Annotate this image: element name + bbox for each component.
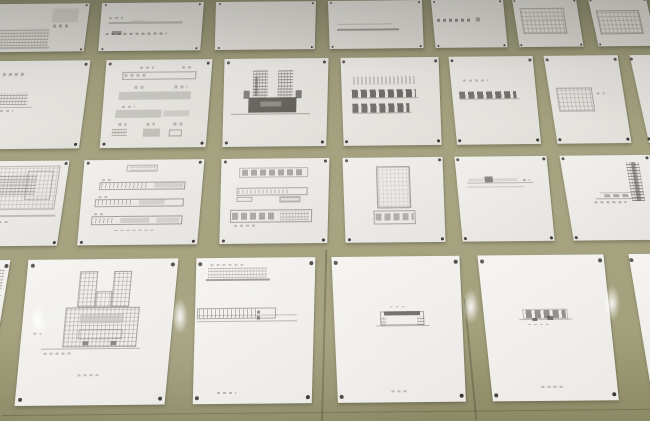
- drawing-mark-grid: [595, 10, 644, 34]
- sheet-pin: [310, 46, 312, 48]
- drawing-mark-rect-d: [112, 31, 123, 35]
- sheet-pin: [437, 45, 439, 47]
- sheet-pin: [195, 396, 199, 400]
- drawing-mark-rect-f: [138, 200, 165, 205]
- drawing-mark-dots: [182, 66, 193, 68]
- drawing-mark-hline: [375, 325, 429, 327]
- drawing-sheet: [98, 2, 204, 51]
- drawing-mark-dots: [0, 110, 13, 112]
- drawing-mark-dots: [43, 353, 70, 355]
- drawing-mark-hatch: [208, 268, 268, 279]
- sheet-pin: [217, 47, 219, 49]
- drawing-sheet: [331, 256, 465, 403]
- sheet-pin: [332, 46, 334, 48]
- sheet-pin: [309, 261, 313, 265]
- sheet-pin: [627, 138, 630, 141]
- panel-seam: [321, 250, 327, 421]
- sheet-pin: [520, 44, 522, 46]
- drawing-mark-hline: [0, 295, 2, 297]
- drawing-mark-dots: [98, 196, 110, 198]
- drawing-mark-dots: [140, 67, 154, 69]
- drawing-mark-rect-f: [120, 217, 149, 223]
- drawing-mark-grid: [62, 307, 139, 347]
- drawing-mark-comb: [97, 200, 133, 205]
- drawing-mark-hline: [0, 107, 33, 109]
- drawing-mark-rect-d: [110, 341, 116, 345]
- sheet-pin: [321, 141, 324, 144]
- sheet-pin: [104, 4, 106, 6]
- drawing-mark-dots: [437, 19, 470, 22]
- sheet-pin: [437, 140, 440, 143]
- sheet-pin: [224, 142, 227, 145]
- sheet-pin: [612, 392, 616, 396]
- drawing-mark-hatch: [380, 316, 387, 325]
- sheet-pin: [311, 2, 313, 4]
- sheet-pin: [170, 262, 174, 266]
- sheet-pin: [542, 158, 545, 161]
- drawing-mark-hline: [197, 320, 297, 322]
- drawing-mark-dots: [134, 86, 147, 88]
- drawing-mark-dots: [109, 17, 123, 19]
- drawing-mark-rect-o: [237, 197, 253, 202]
- sheet-pin: [580, 44, 582, 46]
- sheet-pin: [334, 261, 338, 265]
- drawing-mark-mods: [232, 212, 278, 220]
- sheet-pin: [64, 162, 67, 165]
- sheet-pin: [419, 45, 421, 47]
- light-reflection: [604, 285, 620, 321]
- sheet-pin: [31, 264, 35, 268]
- sheet-pin: [433, 1, 435, 3]
- sheet-pin: [500, 0, 502, 2]
- sheet-pin: [18, 398, 22, 402]
- sheet-pin: [199, 3, 201, 5]
- drawing-mark-mods: [525, 310, 566, 318]
- drawing-sheet: [449, 56, 542, 145]
- sheet-pin: [322, 238, 325, 241]
- drawing-mark-dots: [594, 201, 627, 203]
- drawing-mark-rect-d: [257, 310, 261, 314]
- drawing-sheet: [342, 157, 445, 243]
- drawing-mark-comb: [353, 77, 414, 85]
- drawing-mark-rect-f: [164, 110, 190, 116]
- sheet-pin: [480, 259, 484, 263]
- sheet-pin: [456, 159, 459, 162]
- drawing-mark-hatch: [281, 197, 299, 201]
- drawing-mark-rect-o: [168, 129, 181, 136]
- sheet-pin: [74, 143, 77, 146]
- light-reflection: [30, 303, 46, 339]
- drawing-sheet-grid: [0, 0, 650, 421]
- sheet-pin: [558, 139, 561, 142]
- drawing-mark-dots: [77, 375, 98, 377]
- sheet-pin: [614, 57, 617, 60]
- sheet-pin: [196, 47, 198, 49]
- drawing-mark-rect-o: [24, 171, 54, 200]
- drawing-mark-hatch: [0, 269, 5, 290]
- drawing-mark-mods: [376, 213, 414, 220]
- sheet-pin: [218, 3, 220, 5]
- drawing-mark-hline: [205, 279, 269, 282]
- sheet-pin: [599, 43, 601, 45]
- drawing-mark-grid: [94, 291, 112, 307]
- drawing-mark-rect-d: [547, 316, 554, 320]
- sheet-pin: [80, 240, 83, 243]
- drawing-mark-dots: [0, 73, 24, 76]
- sheet-pin: [643, 0, 645, 1]
- drawing-mark-dots: [174, 123, 183, 125]
- drawing-mark-hatch: [111, 129, 127, 136]
- drawing-mark-hline: [352, 98, 419, 100]
- sheet-pin: [324, 160, 327, 163]
- sheet-pin: [458, 140, 461, 143]
- drawing-sheet: [219, 158, 329, 244]
- drawing-mark-mods: [604, 194, 632, 198]
- sheet-pin: [418, 1, 420, 3]
- drawing-sheet: [0, 60, 91, 149]
- drawing-sheet: [544, 55, 632, 144]
- sheet-pin: [513, 0, 515, 2]
- drawing-mark-hatch: [0, 29, 50, 47]
- sheet-pin: [330, 2, 332, 4]
- drawing-mark-rect-f: [143, 128, 161, 136]
- drawing-mark-dots: [102, 179, 114, 181]
- sheet-pin: [85, 4, 87, 6]
- sheet-pin: [158, 397, 162, 401]
- drawing-mark-dots: [463, 79, 488, 81]
- drawing-mark-hline: [231, 113, 310, 115]
- sheet-pin: [536, 139, 539, 142]
- sheet-pin: [494, 393, 498, 397]
- sheet-pin: [306, 395, 310, 399]
- drawing-mark-dots: [597, 92, 605, 94]
- sheet-pin: [101, 48, 103, 50]
- drawing-mark-rect-d: [82, 341, 88, 345]
- drawing-mark-dots: [542, 386, 562, 388]
- drawing-mark-hline: [0, 47, 49, 49]
- drawing-mark-comb: [239, 189, 289, 194]
- drawing-mark-comb: [101, 183, 149, 189]
- drawing-sheet: [0, 3, 90, 52]
- drawing-mark-hatch: [129, 166, 156, 171]
- drawing-mark-dots: [174, 86, 187, 88]
- sheet-pin: [227, 61, 230, 64]
- drawing-mark-hline: [467, 186, 524, 187]
- drawing-sheet: [222, 58, 328, 147]
- drawing-mark-mods: [242, 169, 305, 176]
- drawing-mark-hline: [352, 112, 411, 113]
- drawing-sheet: [559, 155, 650, 241]
- drawing-mark-hline: [459, 98, 520, 99]
- drawing-mark-comb: [198, 309, 255, 318]
- sheet-pin: [224, 161, 227, 164]
- drawing-mark-hline: [41, 348, 140, 350]
- drawing-sheet: [431, 0, 508, 48]
- drawing-mark-hatch: [0, 93, 28, 106]
- drawing-mark-dots: [528, 323, 551, 325]
- drawing-mark-rect-d: [476, 18, 480, 22]
- drawing-mark-rect-f: [154, 183, 183, 188]
- drawing-sheet: [193, 257, 316, 404]
- drawing-mark-hatch: [280, 211, 308, 221]
- sheet-pin: [52, 241, 55, 244]
- sheet-pin: [85, 62, 88, 65]
- drawing-mark-dots: [94, 213, 106, 215]
- drawing-mark-rect-d: [532, 318, 537, 322]
- drawing-mark-hatch: [278, 71, 293, 99]
- drawing-mark-comb: [95, 218, 116, 224]
- sheet-pin: [589, 0, 591, 1]
- drawing-mark-rect-f: [131, 20, 146, 24]
- drawing-mark-rect-d: [384, 312, 420, 316]
- drawing-sheet: [454, 156, 554, 242]
- sheet-pin: [347, 238, 350, 241]
- drawing-mark-rect-d: [255, 76, 259, 95]
- sheet-pin: [645, 157, 649, 160]
- exhibition-photo: [0, 0, 650, 421]
- sheet-pin: [459, 394, 463, 398]
- drawing-sheet: [215, 1, 316, 50]
- drawing-mark-dots: [53, 25, 71, 28]
- sheet-pin: [5, 264, 10, 268]
- sheet-pin: [102, 143, 105, 146]
- sheet-pin: [323, 60, 326, 63]
- drawing-sheet: [628, 254, 650, 400]
- sheet-pin: [192, 239, 195, 242]
- drawing-mark-dots: [146, 123, 155, 125]
- drawing-mark-dots: [0, 221, 9, 224]
- sheet-pin: [343, 60, 346, 63]
- sheet-pin: [434, 59, 437, 62]
- drawing-mark-dots: [211, 264, 247, 266]
- drawing-sheet: [0, 260, 10, 407]
- sheet-pin: [87, 162, 90, 165]
- drawing-mark-hline: [467, 182, 533, 184]
- drawing-mark-rect-f: [118, 91, 191, 100]
- drawing-mark-rect-d: [257, 316, 261, 320]
- drawing-mark-grid: [520, 7, 568, 34]
- drawing-sheet: [0, 160, 70, 246]
- sheet-pin: [550, 236, 553, 239]
- sheet-pin: [597, 258, 601, 262]
- drawing-mark-dots: [114, 229, 155, 231]
- sheet-pin: [198, 262, 202, 266]
- sheet-pin: [108, 62, 111, 65]
- drawing-mark-hline: [338, 23, 393, 25]
- sheet-pin: [345, 160, 348, 163]
- drawing-mark-rect-f: [156, 217, 179, 223]
- drawing-mark-hline: [336, 28, 398, 31]
- drawing-sheet: [477, 254, 618, 401]
- drawing-mark-dots: [118, 123, 127, 125]
- drawing-mark-hatch: [417, 316, 424, 325]
- sheet-pin: [575, 236, 579, 239]
- sheet-pin: [340, 395, 344, 399]
- drawing-mark-dots: [523, 179, 530, 181]
- drawing-sheet: [77, 159, 204, 245]
- drawing-mark-dots: [390, 306, 408, 308]
- drawing-mark-grid: [377, 167, 410, 208]
- drawing-sheet: [630, 55, 650, 143]
- sheet-pin: [464, 237, 467, 240]
- drawing-sheet: [512, 0, 584, 47]
- drawing-mark-dots: [217, 392, 236, 394]
- drawing-mark-rect-f: [261, 102, 282, 107]
- sheet-pin: [630, 57, 634, 60]
- drawing-mark-dots: [122, 106, 135, 108]
- drawing-mark-rect-o: [78, 329, 122, 340]
- sheet-pin: [440, 237, 443, 240]
- sheet-pin: [198, 161, 201, 164]
- sheet-pin: [79, 48, 81, 50]
- sheet-pin: [222, 239, 225, 242]
- drawing-mark-rect-f: [115, 110, 162, 118]
- sheet-pin: [438, 159, 441, 162]
- sheet-pin: [453, 260, 457, 264]
- drawing-mark-rect-f: [79, 314, 123, 323]
- drawing-mark-dots: [124, 74, 148, 77]
- drawing-mark-hline: [0, 215, 55, 217]
- drawing-sheet: [341, 57, 442, 146]
- drawing-sheet: [328, 0, 424, 49]
- sheet-pin: [207, 61, 210, 64]
- sheet-pin: [629, 258, 634, 262]
- sheet-pin: [573, 0, 575, 2]
- sheet-pin: [528, 58, 531, 61]
- drawing-sheet: [588, 0, 650, 46]
- sheet-pin: [561, 158, 565, 161]
- drawing-mark-grid: [111, 271, 132, 308]
- sheet-pin: [504, 44, 506, 46]
- drawing-sheet: [100, 59, 213, 148]
- drawing-mark-dots: [391, 391, 409, 393]
- panel-seam: [2, 409, 650, 416]
- light-reflection: [172, 298, 188, 334]
- sheet-pin: [201, 142, 204, 145]
- sheet-pin: [545, 58, 548, 61]
- drawing-mark-hline: [520, 319, 573, 321]
- sheet-pin: [450, 59, 453, 62]
- drawing-mark-dots: [234, 225, 258, 227]
- drawing-mark-rect-f: [51, 8, 79, 23]
- drawing-mark-grid: [556, 87, 595, 112]
- light-reflection: [463, 289, 479, 325]
- sheet-pin: [345, 141, 348, 144]
